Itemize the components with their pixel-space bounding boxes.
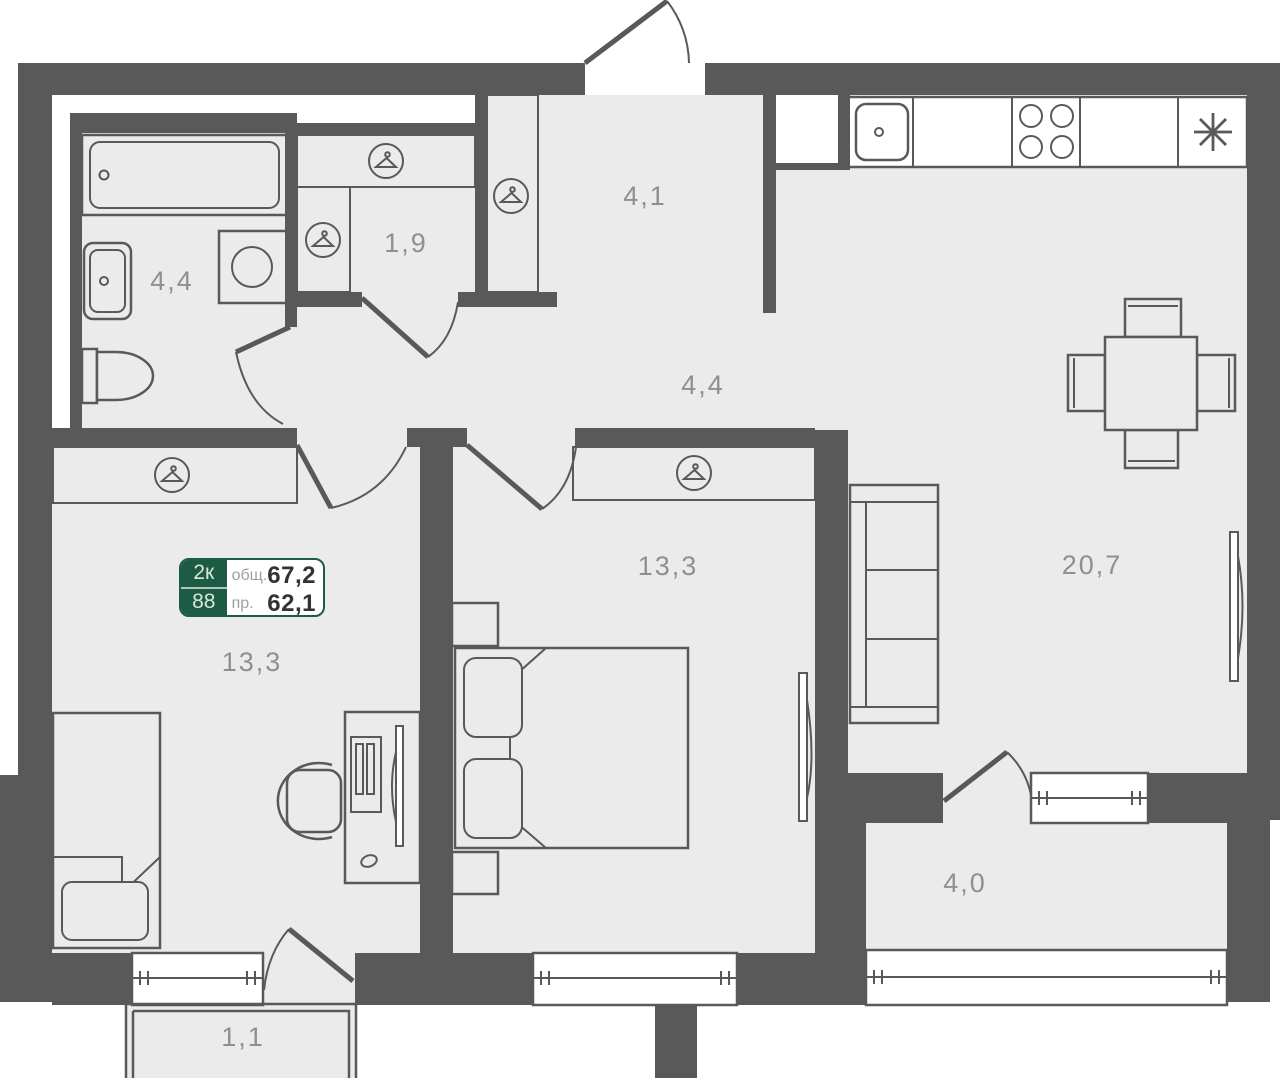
room-count: 2к	[181, 560, 227, 589]
room-label-closet: 1,9	[384, 228, 428, 258]
area-badge-left: 2к 88	[181, 560, 227, 615]
dining-chair	[1197, 355, 1235, 411]
window	[866, 950, 1227, 1005]
area-badge: 2к 88 общ. 67,2 пр. 62,1	[179, 558, 325, 617]
dining-chair	[1125, 430, 1178, 468]
floor-plan-svg: 4,4 1,9 4,1 4,4 13,3 13,3 20,7 4,0 1,1	[0, 0, 1280, 1078]
room-label-kitchen-living: 20,7	[1062, 550, 1123, 580]
double-bed	[455, 648, 688, 848]
room-label-bedroom: 13,3	[638, 551, 699, 581]
kitchen-counter	[848, 97, 1247, 167]
dining-chair	[1068, 355, 1105, 411]
room-label-room-left: 13,3	[222, 647, 283, 677]
sofa	[850, 485, 938, 723]
room-label-hall: 4,4	[681, 370, 725, 400]
single-bed	[53, 713, 160, 948]
room-label-balcony: 1,1	[221, 1022, 265, 1052]
washing-machine	[219, 231, 288, 303]
total-area-value: 67,2	[267, 562, 316, 590]
area-badge-right: общ. 67,2 пр. 62,1	[227, 560, 323, 615]
room-label-bathroom: 4,4	[150, 266, 194, 296]
floor-plan: 4,4 1,9 4,1 4,4 13,3 13,3 20,7 4,0 1,1 2…	[0, 0, 1280, 1078]
dining-chair	[1125, 299, 1181, 337]
nightstand	[452, 603, 498, 646]
unit-number: 88	[181, 589, 227, 616]
window	[132, 953, 263, 1005]
nightstand	[452, 852, 498, 894]
entrance-door	[585, 1, 689, 63]
window	[533, 953, 737, 1005]
room-label-loggia: 4,0	[943, 868, 987, 898]
bathroom-sink	[84, 243, 131, 319]
desk	[345, 712, 420, 883]
total-area-label: общ.	[232, 567, 268, 585]
living-area-label: пр.	[232, 595, 254, 613]
room-label-entry: 4,1	[623, 181, 667, 211]
window	[1031, 773, 1148, 823]
living-area-value: 62,1	[267, 590, 316, 617]
bathtub	[82, 135, 287, 215]
